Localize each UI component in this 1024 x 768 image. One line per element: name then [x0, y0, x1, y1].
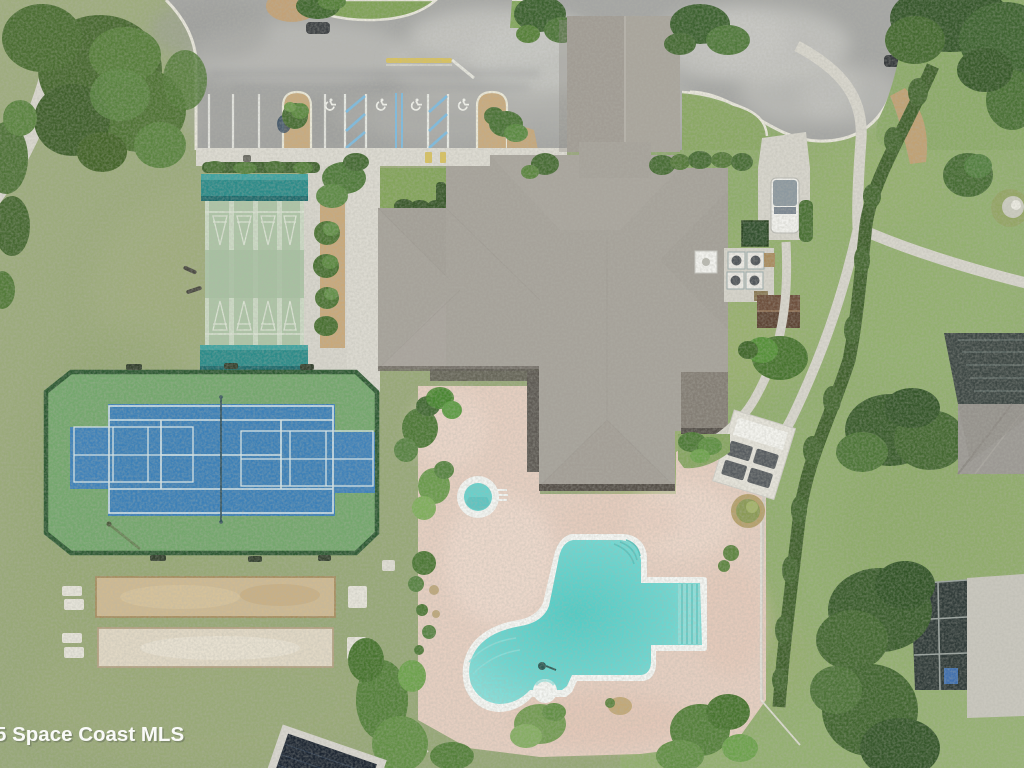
- svg-text:5 Space Coast MLS: 5 Space Coast MLS: [0, 723, 184, 746]
